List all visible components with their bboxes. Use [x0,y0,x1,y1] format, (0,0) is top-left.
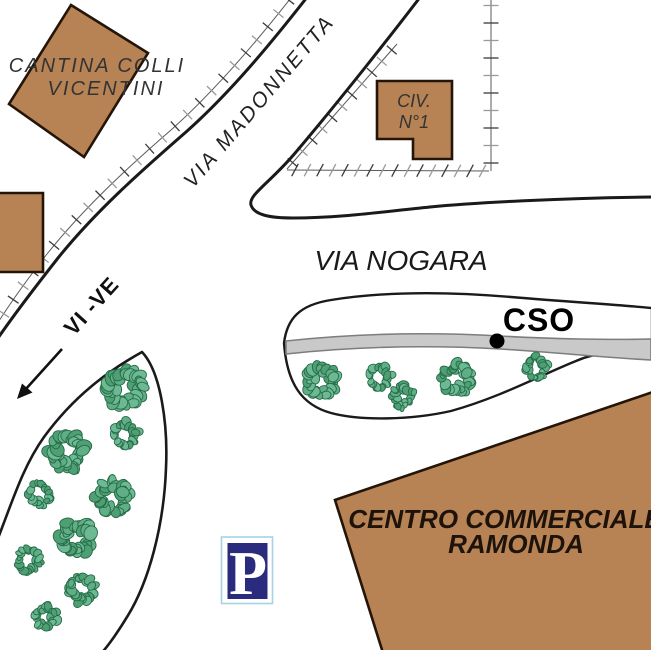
tree [51,517,100,561]
fence-tick [241,49,251,57]
label-cso: CSO [503,302,575,338]
label-via-nogara: VIA NOGARA [314,245,487,276]
fence-tick [263,23,273,31]
tree [24,479,56,511]
fence-tick [337,102,347,111]
label-civ-line2: N°1 [399,112,429,132]
parking-sign: P [222,537,273,608]
fence-tick [377,57,387,66]
fence-tick [158,133,167,143]
fence-tick [387,46,397,55]
label-direction-vi-ve: VI -VE [59,272,124,340]
tree [29,600,63,633]
fence-tick [367,68,377,77]
label-civ-line1: CIV. [397,91,431,111]
tree [97,362,150,413]
parking-sign-letter: P [229,540,267,608]
fence-tick [18,282,29,290]
fence-tick [357,79,367,88]
label-cantina-line2: VICENTINI [48,78,165,100]
label-via-madonnetta: VIA MADONNETTA [179,11,339,193]
fence-tick [284,0,294,4]
fence-tick [0,310,9,317]
tree [63,571,101,609]
fence-tick [347,91,357,100]
tree [88,474,138,520]
fence-property-south [287,170,489,171]
fence-tick [252,36,262,44]
fence-tick [49,241,59,249]
fence-tick [8,296,19,303]
tree [14,543,45,576]
label-centro-line2: RAMONDA [448,529,584,559]
fence-tick [273,10,283,18]
direction-arrow-shaft [25,349,62,390]
tree [41,427,92,476]
trees-parking-grove [14,362,150,632]
site-map-canvas: CANTINA COLLI VICENTINI VIA MADONNETTA C… [0,0,651,650]
site-map: CANTINA COLLI VICENTINI VIA MADONNETTA C… [0,0,651,650]
direction-arrow [17,349,62,399]
building-small [0,193,43,272]
label-cantina-line1: CANTINA COLLI [9,55,185,77]
tree [110,415,144,452]
